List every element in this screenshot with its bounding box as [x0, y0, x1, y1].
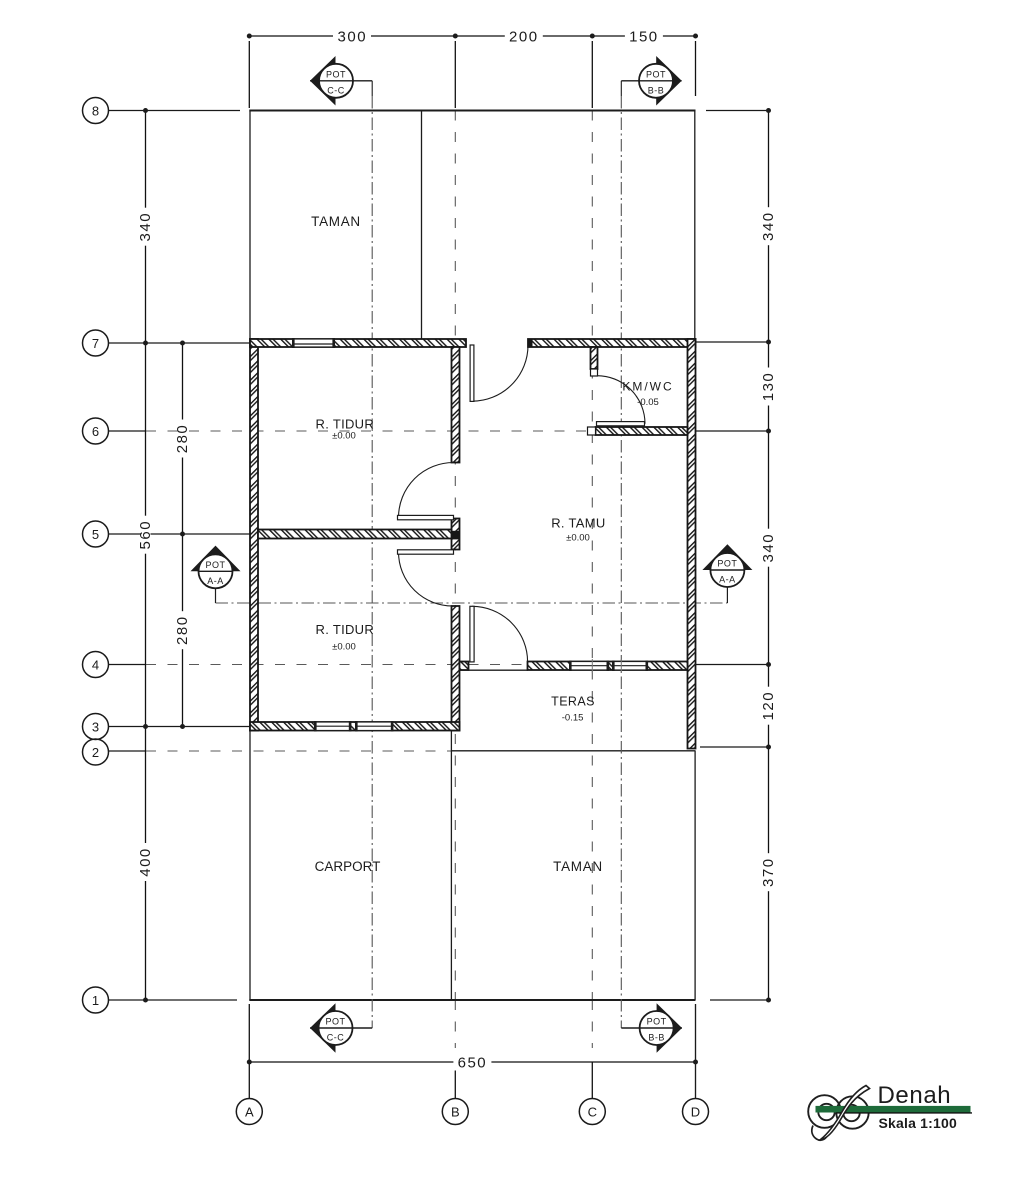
svg-text:150: 150 — [629, 29, 659, 46]
svg-text:TERAS: TERAS — [551, 695, 595, 709]
svg-text:2: 2 — [92, 745, 99, 760]
svg-text:7: 7 — [92, 336, 99, 351]
svg-text:130: 130 — [760, 372, 777, 402]
svg-text:5: 5 — [92, 527, 99, 542]
svg-text:Denah: Denah — [878, 1082, 952, 1109]
svg-text:3: 3 — [92, 719, 99, 734]
svg-text:560: 560 — [137, 520, 154, 550]
svg-text:280: 280 — [174, 424, 191, 454]
svg-text:POT: POT — [647, 1017, 667, 1027]
svg-text:±0.00: ±0.00 — [332, 642, 356, 653]
svg-text:R. TAMU: R. TAMU — [551, 516, 605, 531]
svg-text:±0.00: ±0.00 — [566, 533, 590, 544]
svg-text:POT: POT — [646, 69, 666, 79]
svg-text:300: 300 — [338, 29, 368, 46]
svg-text:340: 340 — [760, 533, 777, 563]
svg-text:CARPORT: CARPORT — [315, 859, 381, 874]
svg-text:R. TIDUR: R. TIDUR — [316, 622, 375, 637]
svg-text:R. TIDUR: R. TIDUR — [316, 417, 375, 432]
svg-text:C-C: C-C — [327, 85, 345, 95]
svg-text:4: 4 — [92, 657, 99, 672]
svg-text:D: D — [691, 1104, 700, 1119]
svg-text:B: B — [451, 1104, 460, 1119]
svg-text:TAMAN: TAMAN — [311, 214, 361, 229]
svg-text:B-B: B-B — [648, 1033, 665, 1043]
svg-text:B-B: B-B — [648, 85, 665, 95]
svg-text:1: 1 — [92, 993, 99, 1008]
svg-text:-0.05: -0.05 — [637, 397, 659, 408]
svg-text:280: 280 — [174, 615, 191, 645]
svg-text:C: C — [588, 1104, 597, 1119]
svg-text:TAMAN: TAMAN — [553, 859, 603, 874]
svg-text:650: 650 — [458, 1055, 488, 1072]
svg-text:POT: POT — [205, 560, 225, 570]
svg-text:370: 370 — [760, 857, 777, 887]
svg-text:340: 340 — [760, 211, 777, 241]
svg-text:KM/WC: KM/WC — [622, 380, 673, 394]
svg-text:6: 6 — [92, 424, 99, 439]
svg-text:400: 400 — [137, 847, 154, 877]
svg-text:POT: POT — [326, 69, 346, 79]
svg-text:POT: POT — [717, 559, 737, 569]
svg-text:POT: POT — [325, 1017, 345, 1027]
svg-text:200: 200 — [509, 29, 539, 46]
svg-text:A: A — [245, 1104, 254, 1119]
svg-text:C-C: C-C — [327, 1033, 345, 1043]
svg-text:A-A: A-A — [207, 576, 224, 586]
svg-text:-0.15: -0.15 — [562, 713, 584, 724]
svg-text:±0.00: ±0.00 — [332, 431, 356, 442]
svg-text:8: 8 — [92, 103, 99, 118]
svg-text:340: 340 — [137, 212, 154, 242]
svg-text:Skala 1:100: Skala 1:100 — [879, 1115, 957, 1131]
svg-text:120: 120 — [760, 691, 777, 721]
svg-text:A-A: A-A — [719, 575, 736, 585]
